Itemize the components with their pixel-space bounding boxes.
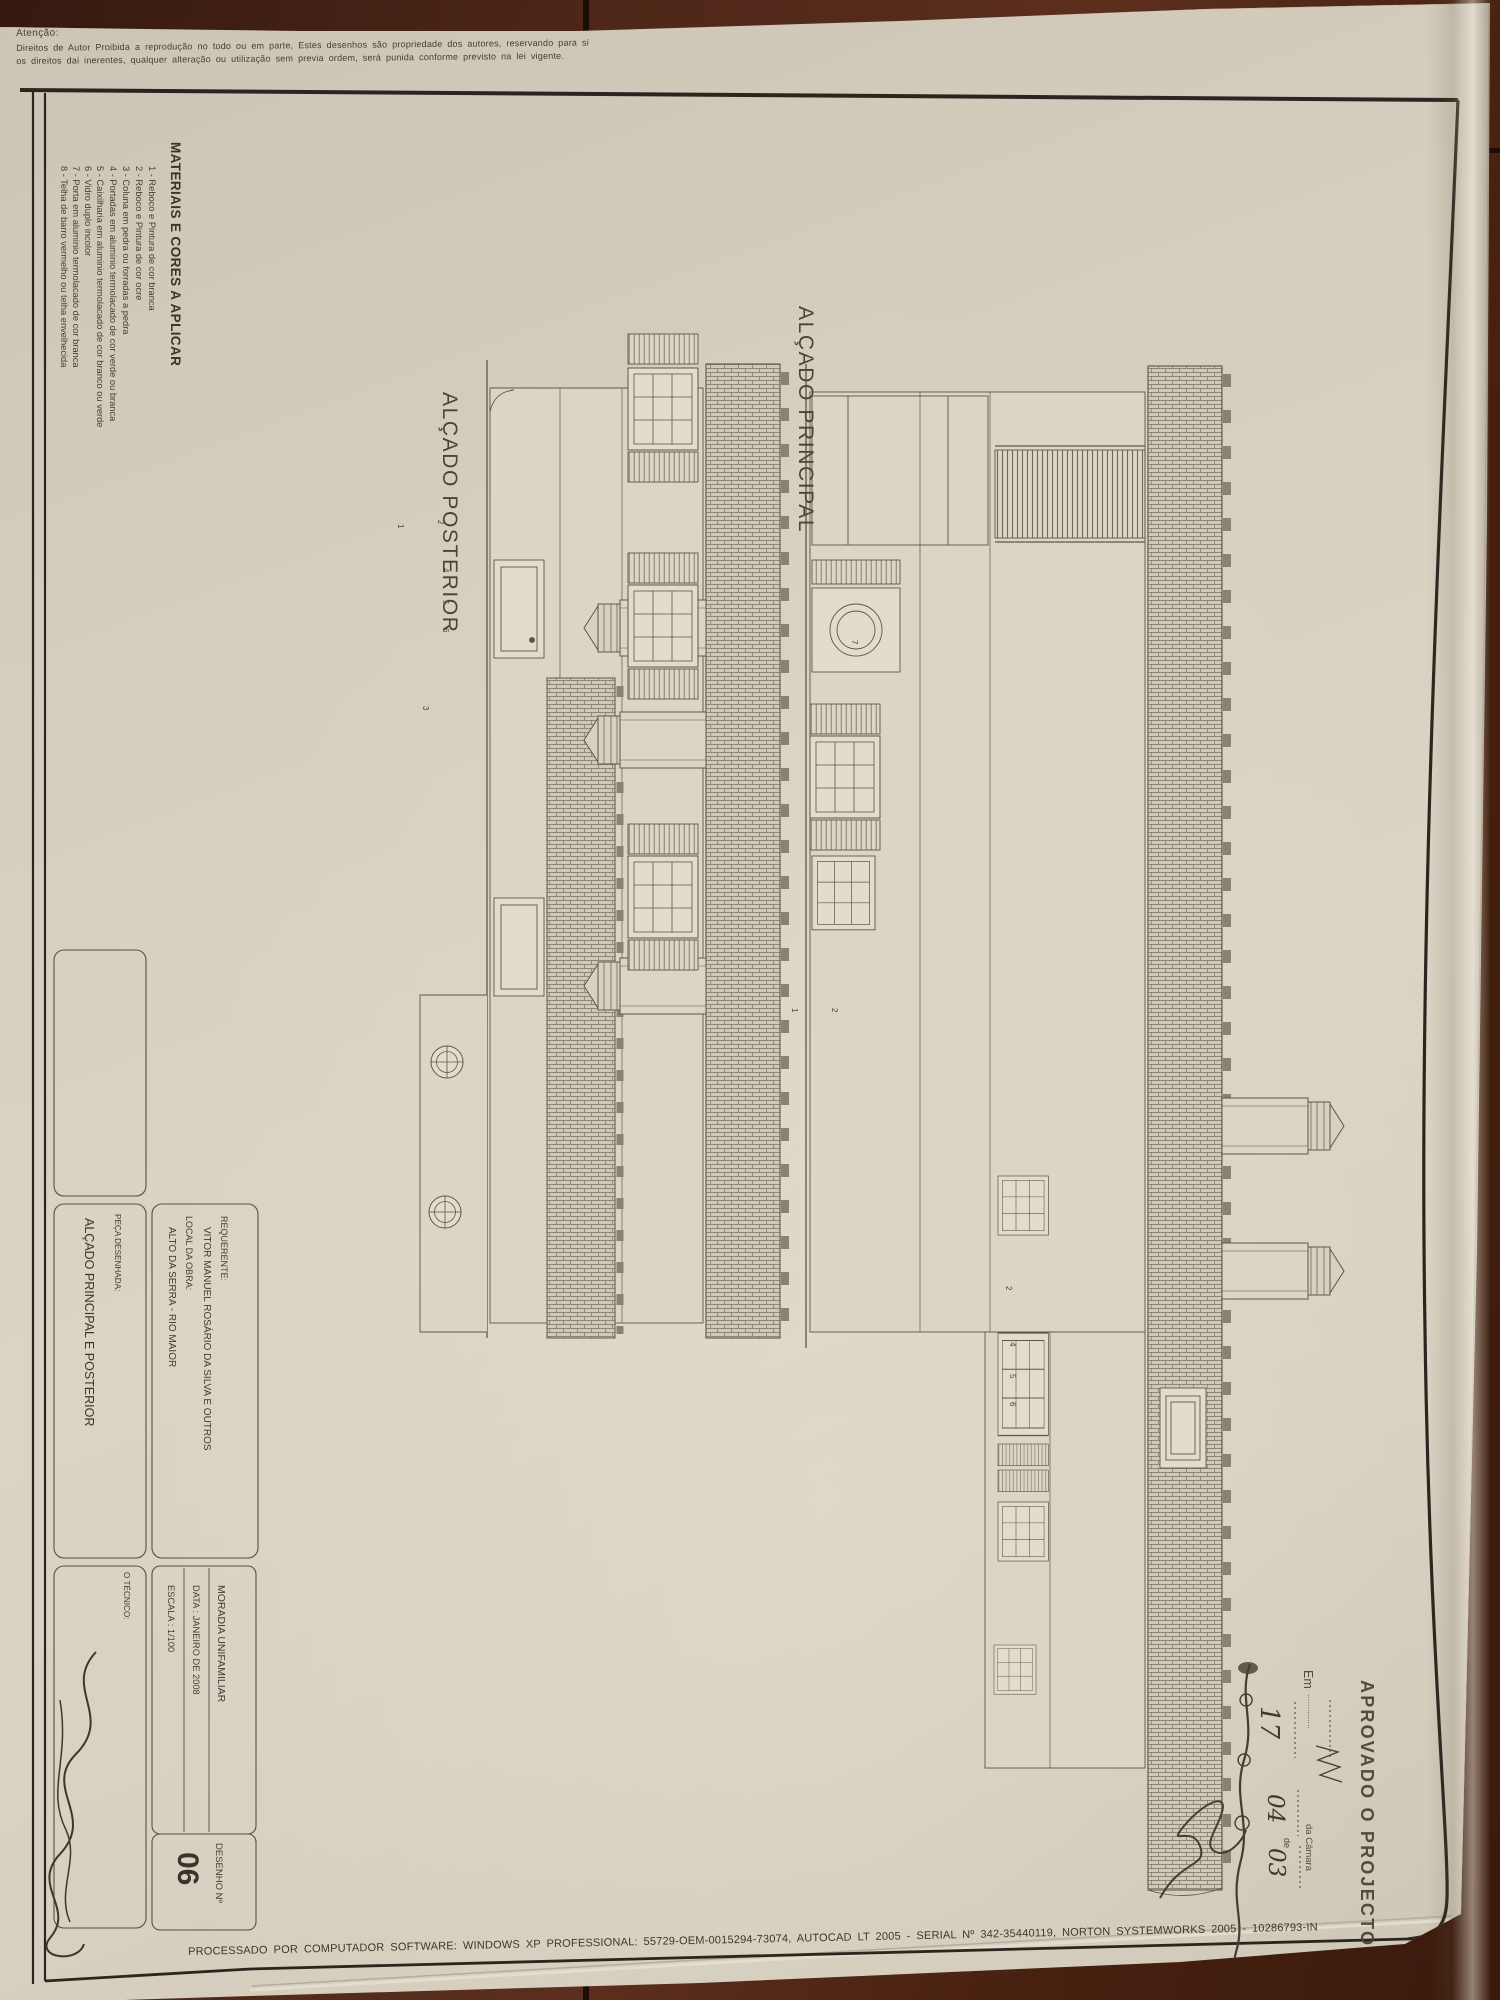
principal-elevation-drawing [806,364,1344,1896]
posterior-elevation-drawing [420,334,785,1338]
local-obra-label: LOCAL DA OBRA: [184,1216,194,1290]
roof-skylight [1160,1388,1206,1468]
material-ref-digit: 4 [1008,1342,1017,1346]
local-obra-value: ALTO DA SERRA - RIO MAIOR [166,1227,177,1367]
handwritten-year: 03 [1263,1848,1289,1877]
drawing-number: 06 [170,1852,204,1885]
posterior-door [494,560,544,658]
materials-item: 6 - Vidro duplo incolor [83,166,93,256]
stamp-dotted-line: .............. [1306,1694,1316,1729]
project-type: MORADIA UNIFAMILIAR [215,1585,227,1702]
material-ref-digit: 6 [1008,1402,1017,1406]
material-ref-digit: 6 [441,628,450,632]
materials-item: 8 - Telha de barro vermelho ou telha env… [59,166,69,367]
handwritten-day: 17 [1254,1706,1284,1739]
drawing-date: DATA : JANEIRO DE 2008 [191,1585,201,1695]
materials-item: 7 - Porta em aluminio termolacado de cor… [71,166,81,368]
material-ref-digit: 5 [1008,1374,1017,1378]
material-ref-digit: 5 [441,600,450,604]
title-block [54,950,258,1930]
material-ref-digit: 1 [396,524,405,528]
porthole-window [431,1046,463,1078]
material-ref-digit: 4 [441,568,450,572]
material-ref-digit: 3 [421,706,430,710]
stamp-de-label: de [1282,1838,1292,1848]
materials-item: 5 - Caixilharia em aluminio termolacado … [95,166,105,427]
tecnico-label: O TÉCNICO: [122,1572,131,1620]
drawing-sheet: Atenção: Direitos de Autor Proibida a re… [0,0,1500,2000]
copyright-heading: Atenção: [16,23,589,39]
copyright-line: Direitos de Autor Proibida a reprodução … [16,37,589,52]
materials-item: 1 - Reboco e Pintura de cor branca [147,166,157,311]
drawing-number-label: DESENHO Nº [213,1843,224,1903]
approval-stamp-title: APROVADO O PROJECTO [1356,1680,1377,1947]
peca-desenhada-label: PEÇA DESENHADA: [113,1214,122,1291]
requerente-label: REQUERENTE: [219,1216,229,1281]
stamp-camara-text: da Câmara [1303,1824,1314,1871]
photo-of-drawing-on-table: Atenção: Direitos de Autor Proibida a re… [0,0,1500,2000]
balcony-balustrade [995,450,1145,538]
copyright-note: Atenção: Direitos de Autor Proibida a re… [16,23,589,66]
porthole-window [429,1196,461,1228]
material-ref-digit: 1 [790,1008,799,1012]
material-ref-digit: 7 [850,640,859,644]
principal-roof-band [1148,366,1222,1890]
material-ref-digit: 2 [436,520,445,524]
material-ref-digit: 2 [830,1008,839,1012]
peca-desenhada-value: ALÇADO PRINCIPAL E POSTERIOR [82,1218,96,1426]
materials-item: 4 - Portadas em aluminio termolacado de … [108,166,118,421]
materials-item: 3 - Coluna em pedra ou forradas a pedra [121,166,131,334]
materials-item: 2 - Reboco e Pintura de cor ocre [134,166,144,300]
drawing-scale: ESCALA : 1/100 [166,1585,176,1652]
material-ref-digit: 2 [1004,1286,1013,1290]
posterior-elevation-label: ALÇADO POSTERIOR [437,392,461,633]
requerente-value: VITOR MANUEL ROSÁRIO DA SILVA E OUTROS [201,1227,212,1451]
materials-legend-title: MATERIAIS E CORES A APLICAR [168,142,183,366]
stamp-em-label: Em [1301,1670,1315,1689]
handwritten-month: 04 [1262,1794,1288,1823]
principal-elevation-label: ALÇADO PRINCIPAL [793,306,817,533]
